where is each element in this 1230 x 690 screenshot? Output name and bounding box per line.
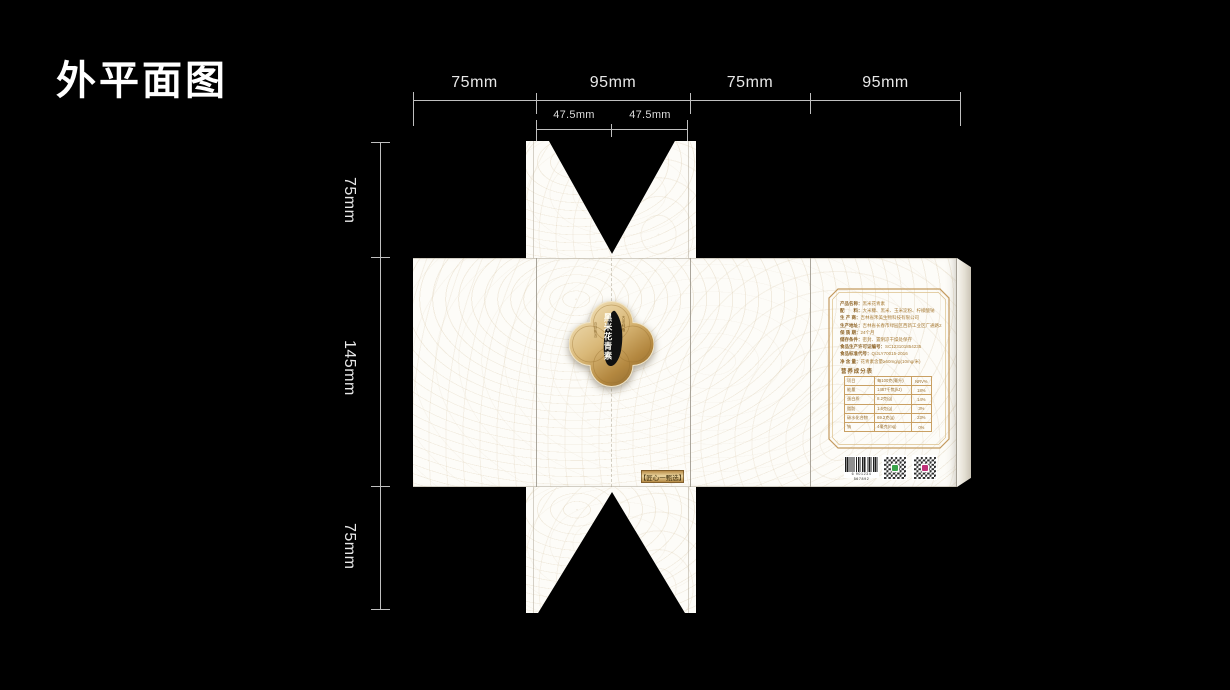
gold-emblem: 黑米花青素 古法种植 自然甄选 [569,299,654,389]
cell: 1.6克(g) [875,404,912,413]
emblem-main-text: 黑米花青素 [602,313,614,373]
cell: 14% [911,395,931,404]
field-value: 密封、置阴凉干燥处保存 [863,337,913,342]
nutrition-table-title: 营养成分表 [841,367,873,375]
fold-line [536,258,537,487]
dim-tick [536,120,537,142]
front-bottom-badge: 【匠心一甄选】 [641,470,684,483]
dim-tick [371,257,390,258]
dim-label-95mm: 95mm [536,74,690,92]
dim-tick [960,92,961,126]
fold-line-horizontal [413,486,957,487]
info-line: 食品标准代号：Q/JLY70015-2016 [840,350,942,357]
info-line: 净 含 量：花青素含量≥60mg/g(10mg/米) [840,358,942,365]
field-value: 大米糠、黑米、玉米淀粉、柠檬酸钠 [863,308,935,313]
field-label: 食品标准代号： [840,351,872,356]
qr-modules [914,457,936,479]
dim-label-75mm: 75mm [690,74,810,92]
cell: 0% [911,422,931,431]
cell: 每100克(毫升) [875,377,912,386]
cell: 3% [911,404,931,413]
canvas: 外平面图 75mm 95mm 75mm 95mm 47.5mm 47.5mm 7… [0,0,1230,690]
nutrition-table: 项目每100克(毫升)NRV% 能量1487千焦(kJ)18% 蛋白质8.2克(… [844,376,932,432]
fold-line [690,258,691,487]
table-row: 蛋白质8.2克(g)14% [845,395,932,404]
field-value: SC123101854235 [885,344,921,349]
dim-tick [413,92,414,126]
cell: 能量 [845,386,875,395]
field-value: 黑米花青素 [863,301,886,306]
info-line: 生 产 商：吉林省禾美生物科技有限公司 [840,314,942,321]
dim-label-95mm: 95mm [810,74,961,92]
field-label: 生 产 商： [840,315,861,320]
field-value: Q/JLY70015-2016 [872,351,908,356]
barcode: 6 901234 567892 [844,456,879,478]
box-bottom-tuck-flap [526,487,696,613]
qr-code-green-center [882,455,907,480]
barcode-number: 6 901234 567892 [845,472,878,482]
field-label: 产品名称： [840,301,863,306]
dim-line [413,100,961,101]
dim-tick [371,609,390,610]
dim-tick [810,93,811,114]
emblem-side-text-right: 古法种植 [622,316,627,332]
cell: 1487千焦(kJ) [875,386,912,395]
barcode-bars [845,457,878,472]
info-line: 保 质 期：24个月 [840,329,942,336]
cell: 8.2克(g) [875,395,912,404]
field-label: 生产地址： [840,323,863,328]
dim-label-75mm: 75mm [340,523,358,569]
cell: 69.2克(g) [875,413,912,422]
cell: 18% [911,386,931,395]
info-line: 产品名称：黑米花青素 [840,300,942,307]
emblem-side-text-left: 自然甄选 [594,322,599,338]
field-value: 24个月 [861,330,875,335]
table-row: 钠4毫克(mg)0% [845,422,932,431]
field-label: 保 质 期： [840,330,861,335]
qr-code-magenta-center [912,455,937,480]
field-value: 花青素含量≥60mg/g(10mg/米) [861,359,921,364]
flap-crease [688,487,689,613]
flap-crease [533,141,534,258]
fold-line [956,258,957,487]
cell: NRV% [911,377,931,386]
table-row: 脂肪1.6克(g)3% [845,404,932,413]
flap-crease [533,487,534,613]
field-value: 吉林省禾美生物科技有限公司 [861,315,920,320]
box-glue-edge [957,258,971,487]
box-top-tuck-flap [526,141,696,258]
cell: 4毫克(mg) [875,422,912,431]
cell: 钠 [845,422,875,431]
dim-label-145mm: 145mm [340,340,358,396]
cell: 蛋白质 [845,395,875,404]
dim-label-47-5mm: 47.5mm [536,109,612,121]
fold-line [810,258,811,487]
cell: 脂肪 [845,404,875,413]
info-line: 食品生产许可证编号：SC123101854235 [840,343,942,350]
qr-center-dot-magenta [921,464,929,472]
info-line: 生产地址：吉林省长春市绿园区西新工业区广通路219号 [840,322,942,329]
dim-tick [371,486,390,487]
dim-tick [690,93,691,114]
dim-label-75mm: 75mm [413,74,536,92]
dim-label-47-5mm: 47.5mm [612,109,688,121]
field-label: 储存条件： [840,337,863,342]
qr-modules [884,457,906,479]
flap-crease [688,141,689,258]
field-label: 配 料： [840,308,863,313]
dim-label-75mm: 75mm [340,177,358,223]
cell: 项目 [845,377,875,386]
dim-tick [687,120,688,142]
dim-line [380,142,381,610]
fold-line-horizontal [413,258,957,259]
table-row: 碳水化合物69.2克(g)23% [845,413,932,422]
table-row: 项目每100克(毫升)NRV% [845,377,932,386]
dim-tick [371,142,390,143]
dim-line-sub [536,129,688,130]
info-line: 储存条件：密封、置阴凉干燥处保存 [840,336,942,343]
table-row: 能量1487千焦(kJ)18% [845,386,932,395]
field-value: 吉林省长春市绿园区西新工业区广通路219号 [863,323,943,328]
cell: 碳水化合物 [845,413,875,422]
qr-center-dot-green [891,464,899,472]
field-label: 净 含 量： [840,359,861,364]
field-label: 食品生产许可证编号： [840,344,885,349]
page-title: 外平面图 [56,48,228,106]
dim-tick [611,124,612,137]
product-info-fields: 产品名称：黑米花青素 配 料：大米糠、黑米、玉米淀粉、柠檬酸钠 生 产 商：吉林… [840,300,942,365]
front-badge-text: 【匠心一甄选】 [641,472,684,482]
info-line: 配 料：大米糠、黑米、玉米淀粉、柠檬酸钠 [840,307,942,314]
cell: 23% [911,413,931,422]
